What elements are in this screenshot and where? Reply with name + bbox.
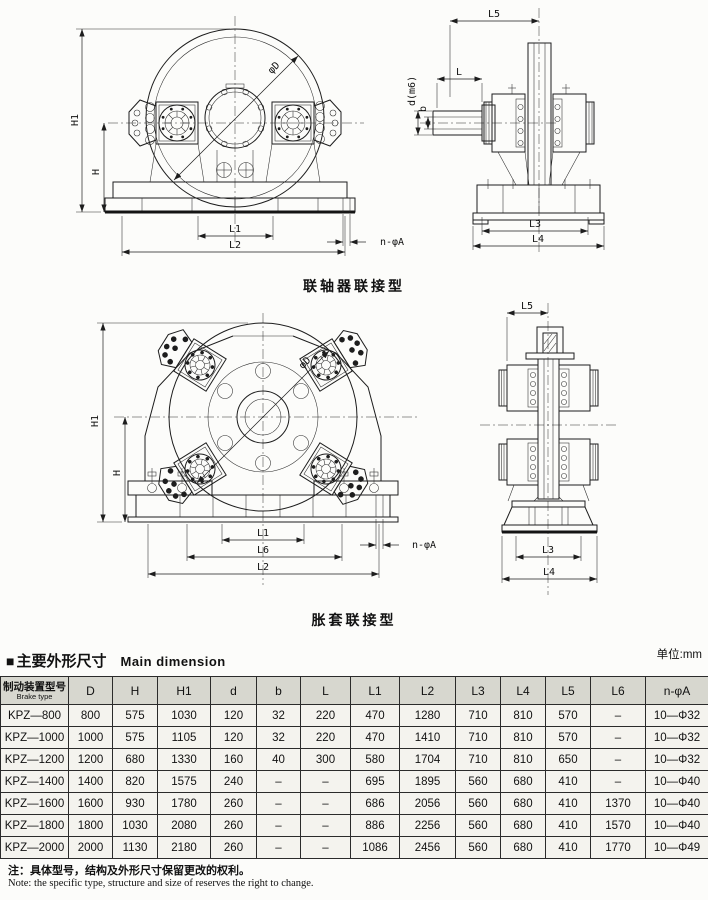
dimension-cell: 680 (113, 749, 158, 771)
caption-coupling-type: 联轴器联接型 (0, 276, 708, 296)
column-header-13: n-φA (646, 677, 708, 705)
brake-type-header: 制动装置型号 Brake type (1, 677, 69, 705)
table-row: KPZ—160016009301780260––6862056560680410… (1, 793, 708, 815)
table-row: KPZ—140014008201575240––6951895560680410… (1, 771, 708, 793)
dimension-cell: 2180 (158, 837, 211, 859)
dimension-cell: 810 (501, 749, 546, 771)
square-bullet-icon: ■ (6, 653, 14, 669)
dimension-cell: 1410 (400, 727, 456, 749)
l1-label: L1 (257, 528, 269, 539)
dimension-cell: 120 (211, 727, 257, 749)
dimension-cell: 1030 (158, 705, 211, 727)
dimension-cell: 2080 (158, 815, 211, 837)
dimension-cell: 10—Φ40 (646, 771, 708, 793)
dimension-cell: 810 (501, 705, 546, 727)
dimension-cell: 1895 (400, 771, 456, 793)
l2-label: L2 (257, 562, 269, 573)
l-label: L (456, 67, 462, 78)
dimension-cell: 220 (301, 705, 351, 727)
brake-type-cell: KPZ—1200 (1, 749, 69, 771)
h-label: H (91, 169, 102, 175)
sleeve-side-drawing: L5 L3 L4 (452, 297, 704, 609)
dimension-cell: 1200 (69, 749, 113, 771)
dimensions: H1 H L1 L2 n-φA φD (70, 29, 404, 256)
dimension-cell: 710 (456, 705, 501, 727)
dimension-cell: 240 (211, 771, 257, 793)
dimension-cell: – (301, 793, 351, 815)
dimension-cell: 470 (351, 727, 400, 749)
dimension-cell: 1130 (113, 837, 158, 859)
dimension-cell: 120 (211, 705, 257, 727)
dimension-cell: 2456 (400, 837, 456, 859)
l1-label: L1 (229, 224, 241, 235)
top-clamp (526, 327, 574, 359)
dimension-cell: – (301, 815, 351, 837)
dimension-cell: 10—Φ49 (646, 837, 708, 859)
dimension-cell: 575 (113, 705, 158, 727)
column-header-11: L5 (546, 677, 591, 705)
l2-label: L2 (229, 240, 241, 251)
dimension-cell: 1600 (69, 793, 113, 815)
l4-label: L4 (543, 567, 555, 578)
dimension-cell: 10—Φ32 (646, 705, 708, 727)
column-header-5: b (257, 677, 301, 705)
dimension-cell: – (591, 749, 646, 771)
h-label: H (112, 470, 123, 476)
column-header-8: L2 (400, 677, 456, 705)
dimension-cell: 575 (113, 727, 158, 749)
column-header-12: L6 (591, 677, 646, 705)
dimension-cell: 810 (501, 727, 546, 749)
stand (473, 152, 604, 224)
brake-type-cell: KPZ—1800 (1, 815, 69, 837)
d-m6-label: d(m6) (407, 76, 418, 106)
brake-type-cell: KPZ—800 (1, 705, 69, 727)
column-header-1: D (69, 677, 113, 705)
dimension-cell: 930 (113, 793, 158, 815)
h1-label: H1 (70, 114, 81, 126)
base-pedestal (105, 182, 355, 212)
dimension-cell: 1770 (591, 837, 646, 859)
unit-label: 单位:mm (657, 646, 702, 662)
brake-type-cell: KPZ—1600 (1, 793, 69, 815)
dimension-cell: 410 (546, 815, 591, 837)
sleeve-front-drawing: H1 H L1 L6 L2 n-φA φD (70, 303, 460, 593)
dimension-cell: – (257, 771, 301, 793)
dimension-cell: 2000 (69, 837, 113, 859)
column-header-7: L1 (351, 677, 400, 705)
b-label: b (418, 106, 429, 112)
dimension-cell: 1800 (69, 815, 113, 837)
dimension-cell: 1280 (400, 705, 456, 727)
table-row: KPZ—120012006801330160403005801704710810… (1, 749, 708, 771)
l5-label: L5 (488, 9, 500, 20)
section-title: ■主要外形尺寸Main dimension (6, 650, 226, 671)
brake-type-header-en: Brake type (1, 693, 68, 701)
dimension-cell: 410 (546, 793, 591, 815)
l3-label: L3 (529, 219, 541, 230)
dimension-cell: 1030 (113, 815, 158, 837)
brake-type-cell: KPZ—1400 (1, 771, 69, 793)
l6-label: L6 (257, 545, 269, 556)
stand (502, 485, 597, 532)
dimension-cell: – (591, 727, 646, 749)
h1-label: H1 (90, 415, 101, 427)
dimension-cell: – (301, 837, 351, 859)
dimension-cell: 800 (69, 705, 113, 727)
dimension-cell: 32 (257, 705, 301, 727)
dimension-cell: 580 (351, 749, 400, 771)
dimension-cell: 300 (301, 749, 351, 771)
l3-label: L3 (542, 545, 554, 556)
dimension-cell: 710 (456, 749, 501, 771)
dimension-cell: 820 (113, 771, 158, 793)
disc-edge (528, 43, 551, 185)
dimension-cell: 2256 (400, 815, 456, 837)
dimension-cell: 560 (456, 837, 501, 859)
dimension-cell: 470 (351, 705, 400, 727)
dimension-cell: 680 (501, 793, 546, 815)
brake-type-cell: KPZ—1000 (1, 727, 69, 749)
dimension-cell: 680 (501, 815, 546, 837)
table-header-row: 制动装置型号 Brake type DHH1dbLL1L2L3L4L5L6n-φ… (1, 677, 708, 705)
l4-label: L4 (532, 234, 544, 245)
dimension-cell: 1086 (351, 837, 400, 859)
column-header-10: L4 (501, 677, 546, 705)
l5-label: L5 (521, 301, 533, 312)
dimension-cell: 560 (456, 793, 501, 815)
dimension-cell: 650 (546, 749, 591, 771)
table-row: KPZ—1800180010302080260––886225656068041… (1, 815, 708, 837)
dimension-cell: 220 (301, 727, 351, 749)
dimension-cell: 1780 (158, 793, 211, 815)
section-title-en: Main dimension (120, 654, 225, 669)
dimension-cell: – (591, 771, 646, 793)
dimension-cell: 2056 (400, 793, 456, 815)
dimension-cell: 695 (351, 771, 400, 793)
coupling-side-drawing: L5 L d(m6) b L3 L4 (408, 2, 704, 270)
main-dimension-table: 制动装置型号 Brake type DHH1dbLL1L2L3L4L5L6n-φ… (0, 676, 708, 859)
dimension-cell: 10—Φ32 (646, 749, 708, 771)
n-phi-a-label: n-φA (412, 540, 436, 551)
dimension-cell: – (591, 705, 646, 727)
dimension-cell: 10—Φ40 (646, 793, 708, 815)
dimension-cell: 160 (211, 749, 257, 771)
brake-type-cell: KPZ—2000 (1, 837, 69, 859)
dimension-cell: 410 (546, 771, 591, 793)
dimension-cell: 710 (456, 727, 501, 749)
dimension-cell: 1570 (591, 815, 646, 837)
dimension-cell: 1105 (158, 727, 211, 749)
caption-sleeve-type: 胀套联接型 (0, 610, 708, 630)
dimension-cell: 1400 (69, 771, 113, 793)
dimension-cell: 1000 (69, 727, 113, 749)
dimension-cell: 1704 (400, 749, 456, 771)
table-row: KPZ—100010005751105120322204701410710810… (1, 727, 708, 749)
n-phi-a-label: n-φA (380, 237, 404, 248)
column-header-6: L (301, 677, 351, 705)
column-header-3: H1 (158, 677, 211, 705)
dimension-cell: 680 (501, 837, 546, 859)
dimension-cell: 410 (546, 837, 591, 859)
dimensions: H1 H L1 L6 L2 n-φA φD (90, 323, 436, 578)
dimension-cell: 570 (546, 727, 591, 749)
table-row: KPZ—2000200011302180260––108624565606804… (1, 837, 708, 859)
dimension-cell: 686 (351, 793, 400, 815)
dimension-cell: 260 (211, 815, 257, 837)
table-row: KPZ—800800575103012032220470128071081057… (1, 705, 708, 727)
column-header-4: d (211, 677, 257, 705)
note-english: Note: the specific type, structure and s… (8, 878, 314, 889)
dimension-cell: 260 (211, 793, 257, 815)
dimension-cell: 40 (257, 749, 301, 771)
dimension-cell: 32 (257, 727, 301, 749)
disc-edge (538, 359, 559, 499)
dimension-cell: 560 (456, 771, 501, 793)
dimension-cell: 260 (211, 837, 257, 859)
dimension-cell: 1330 (158, 749, 211, 771)
dimension-cell: – (257, 815, 301, 837)
dimension-cell: 886 (351, 815, 400, 837)
dimension-cell: 10—Φ32 (646, 727, 708, 749)
dimensions: L5 L d(m6) b L3 L4 (407, 9, 604, 250)
dimension-cell: 560 (456, 815, 501, 837)
dimension-cell: 680 (501, 771, 546, 793)
dimension-cell: – (257, 837, 301, 859)
catalog-page: H1 H L1 L2 n-φA φD (0, 0, 708, 900)
dimension-cell: 1370 (591, 793, 646, 815)
note-chinese: 注：具体型号，结构及外形尺寸保留更改的权利。 (8, 862, 250, 878)
column-header-9: L3 (456, 677, 501, 705)
dimension-cell: – (257, 793, 301, 815)
column-header-2: H (113, 677, 158, 705)
coupling-front-drawing: H1 H L1 L2 n-φA φD (52, 4, 432, 272)
dimension-cell: 1575 (158, 771, 211, 793)
section-title-cn: 主要外形尺寸 (16, 653, 106, 670)
dimension-cell: 10—Φ40 (646, 815, 708, 837)
dimension-cell: 570 (546, 705, 591, 727)
dimension-cell: – (301, 771, 351, 793)
